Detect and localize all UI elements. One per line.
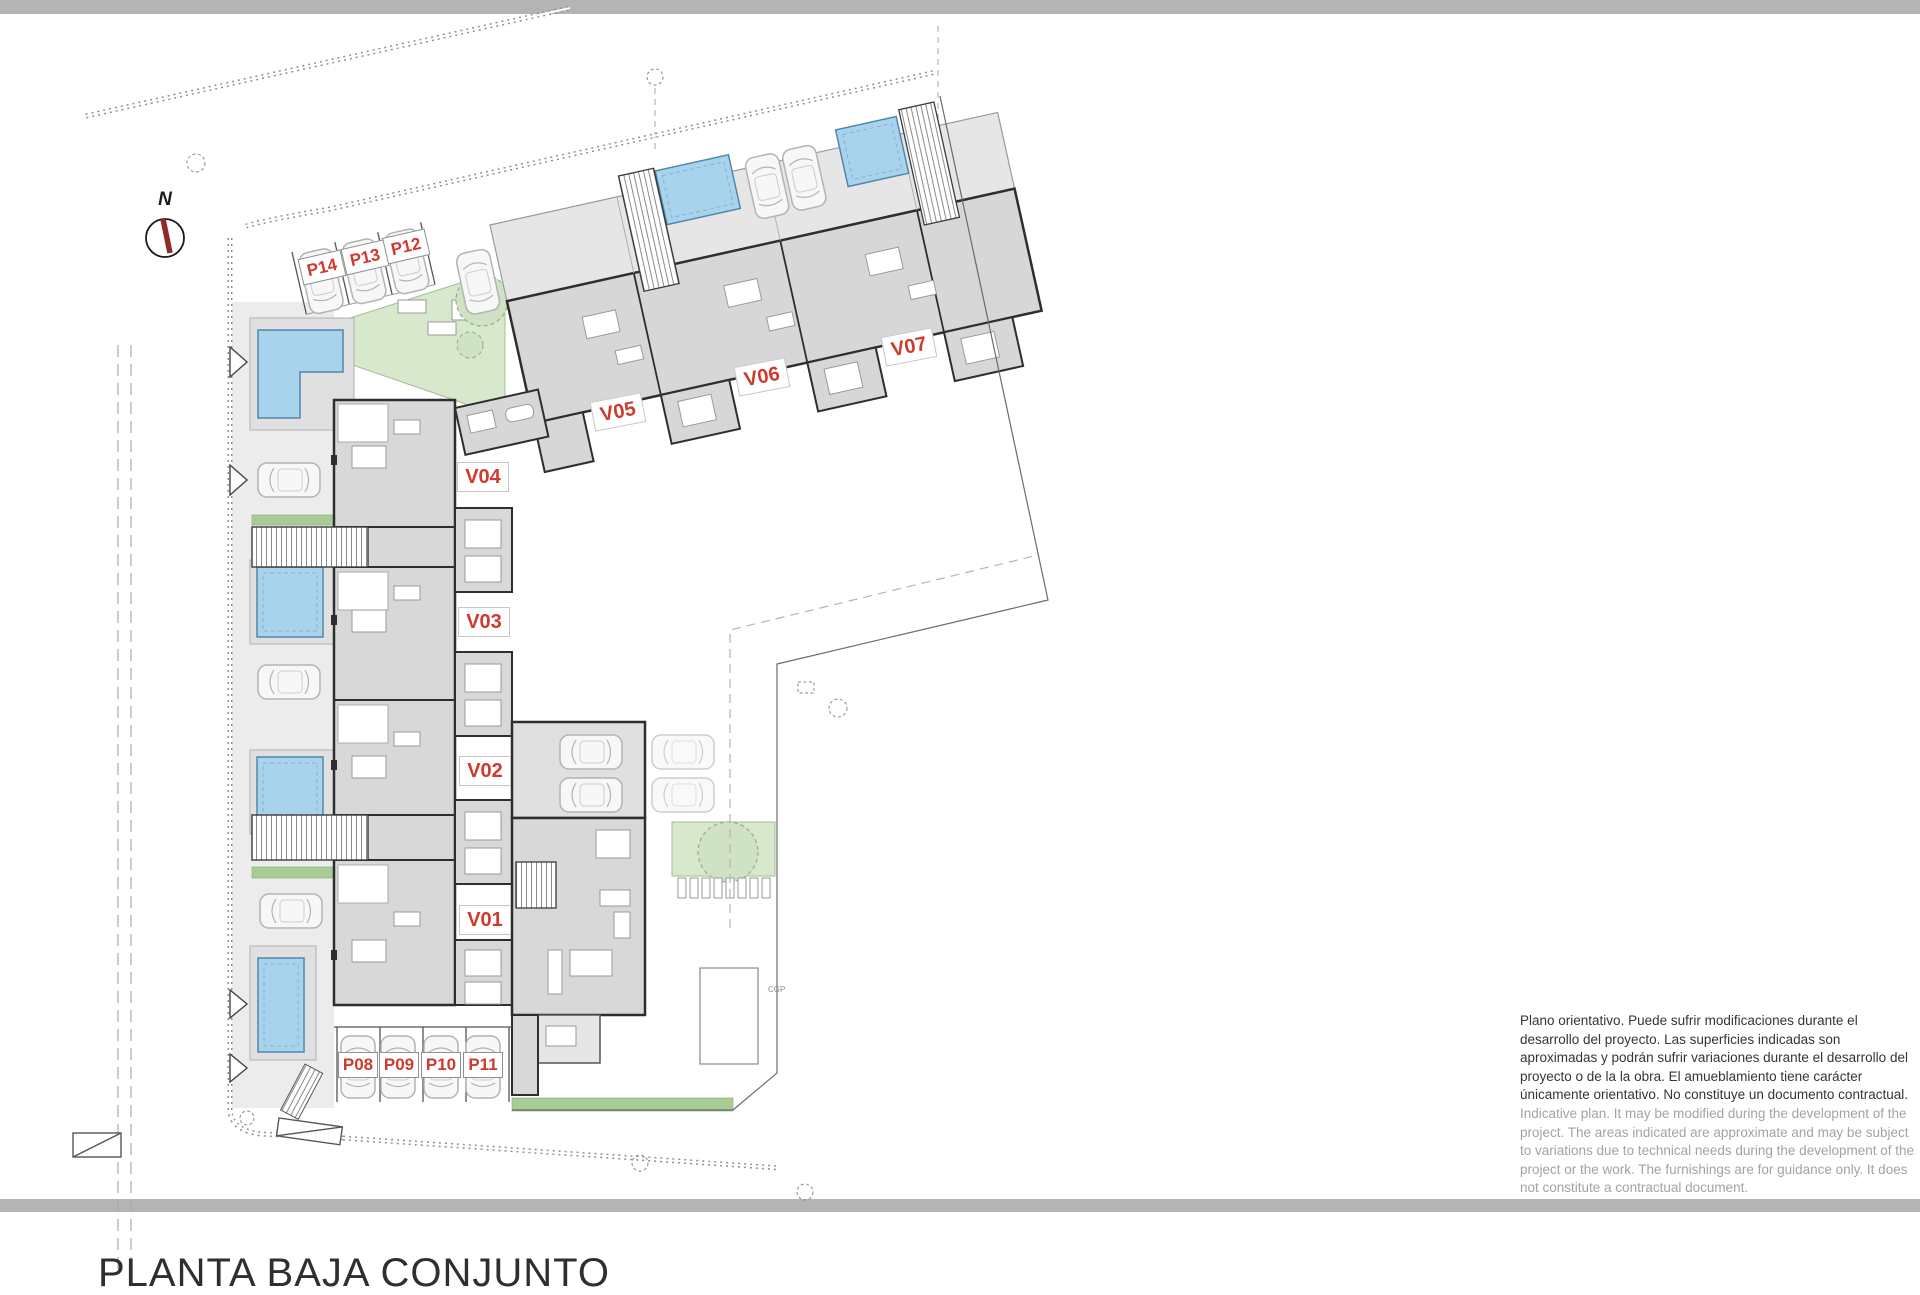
staircase bbox=[516, 862, 556, 908]
north-compass bbox=[146, 219, 184, 257]
parking-label-p09: P09 bbox=[379, 1052, 419, 1078]
villa-garden bbox=[672, 822, 775, 1064]
lawn-pool-area bbox=[700, 968, 758, 1064]
staircase bbox=[252, 527, 368, 567]
compass-north-label: N bbox=[150, 189, 180, 211]
main-villa-building bbox=[512, 722, 714, 1095]
parking-label-p10: P10 bbox=[421, 1052, 461, 1078]
pool bbox=[258, 958, 304, 1052]
disclaimer-english: Indicative plan. It may be modified duri… bbox=[1520, 1105, 1916, 1198]
parking-label-p08: P08 bbox=[338, 1052, 378, 1078]
tree-icon bbox=[698, 822, 758, 882]
culvert-symbols bbox=[73, 1118, 342, 1157]
pool bbox=[257, 567, 323, 637]
unit-label-v03: V03 bbox=[458, 607, 510, 637]
unit-label-v04: V04 bbox=[457, 462, 509, 492]
parking-label-p11: P11 bbox=[463, 1052, 503, 1078]
tree-icon bbox=[457, 332, 483, 358]
disclaimer-spanish: Plano orientativo. Puede sufrir modifica… bbox=[1520, 1012, 1916, 1105]
unit-label-v02: V02 bbox=[459, 756, 511, 786]
disclaimer-block: Plano orientativo. Puede sufrir modifica… bbox=[1520, 1012, 1916, 1198]
north-wing-building bbox=[485, 89, 1053, 472]
staircase bbox=[252, 815, 368, 860]
unit-label-v01: V01 bbox=[459, 905, 511, 935]
cgp-annotation: CGP bbox=[768, 985, 785, 994]
page-title: PLANTA BAJA CONJUNTO bbox=[98, 1253, 610, 1293]
